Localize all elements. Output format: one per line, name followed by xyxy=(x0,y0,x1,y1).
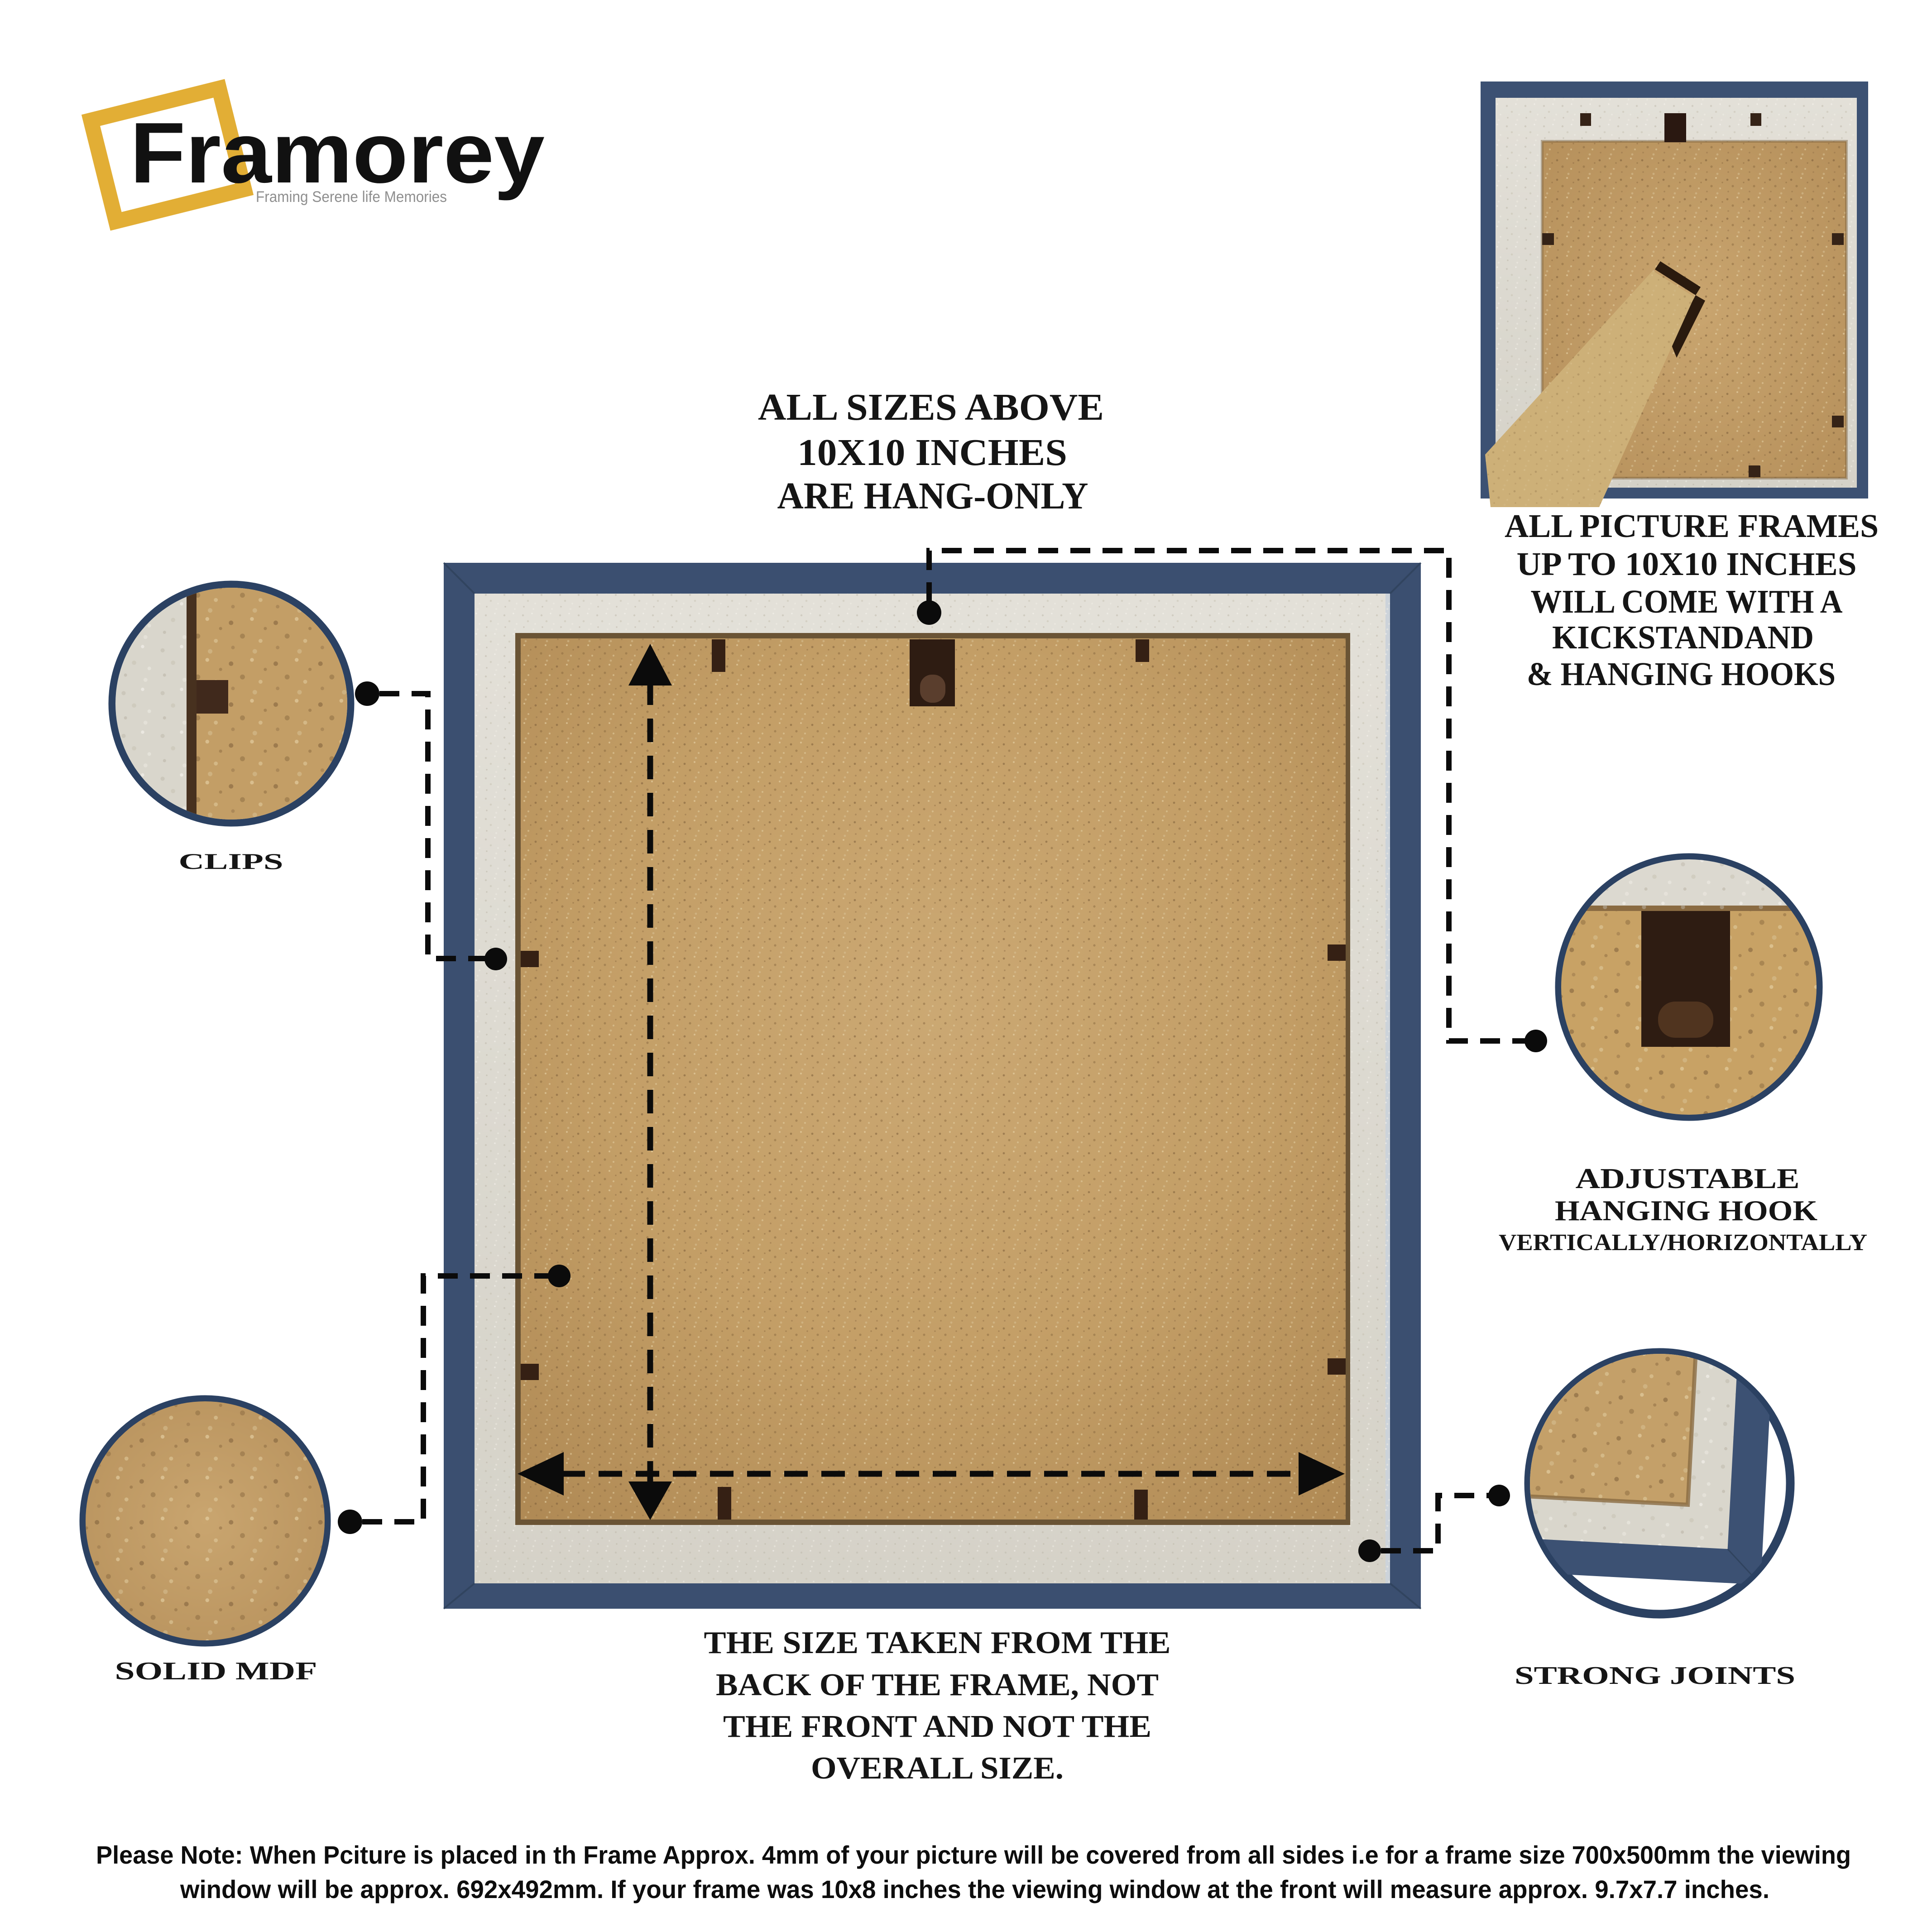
svg-text:Framorey: Framorey xyxy=(130,105,545,201)
svg-text:OVERALL SIZE.: OVERALL SIZE. xyxy=(811,1751,1064,1786)
svg-text:STRONG JOINTS: STRONG JOINTS xyxy=(1515,1662,1795,1690)
svg-text:10X10 INCHES: 10X10 INCHES xyxy=(797,431,1067,474)
svg-text:ADJUSTABLE: ADJUSTABLE xyxy=(1576,1162,1800,1194)
svg-text:WILL COME WITH A: WILL COME WITH A xyxy=(1531,583,1843,620)
svg-text:THE SIZE TAKEN FROM THE: THE SIZE TAKEN FROM THE xyxy=(704,1625,1171,1660)
svg-text:VERTICALLY/HORIZONTALLY: VERTICALLY/HORIZONTALLY xyxy=(1499,1230,1867,1256)
svg-text:SOLID MDF: SOLID MDF xyxy=(115,1657,317,1685)
svg-text:window will be approx. 692x492: window will be approx. 692x492mm. If you… xyxy=(180,1875,1769,1903)
svg-text:BACK OF THE FRAME, NOT: BACK OF THE FRAME, NOT xyxy=(716,1668,1159,1702)
svg-text:KICKSTANDAND: KICKSTANDAND xyxy=(1552,619,1814,656)
svg-text:Framing Serene life Memories: Framing Serene life Memories xyxy=(256,188,447,206)
svg-text:CLIPS: CLIPS xyxy=(179,849,283,874)
svg-text:THE FRONT AND NOT THE: THE FRONT AND NOT THE xyxy=(723,1709,1151,1744)
svg-text:ALL PICTURE FRAMES: ALL PICTURE FRAMES xyxy=(1505,508,1879,544)
svg-text:HANGING HOOK: HANGING HOOK xyxy=(1555,1194,1817,1227)
svg-text:& HANGING HOOKS: & HANGING HOOKS xyxy=(1527,656,1836,692)
svg-text:ALL SIZES ABOVE: ALL SIZES ABOVE xyxy=(758,386,1104,428)
svg-text:Please Note: When Pciture is p: Please Note: When Pciture is placed in t… xyxy=(96,1841,1851,1869)
svg-text:ARE HANG-ONLY: ARE HANG-ONLY xyxy=(777,475,1088,517)
svg-text:UP TO 10X10 INCHES: UP TO 10X10 INCHES xyxy=(1517,546,1857,582)
